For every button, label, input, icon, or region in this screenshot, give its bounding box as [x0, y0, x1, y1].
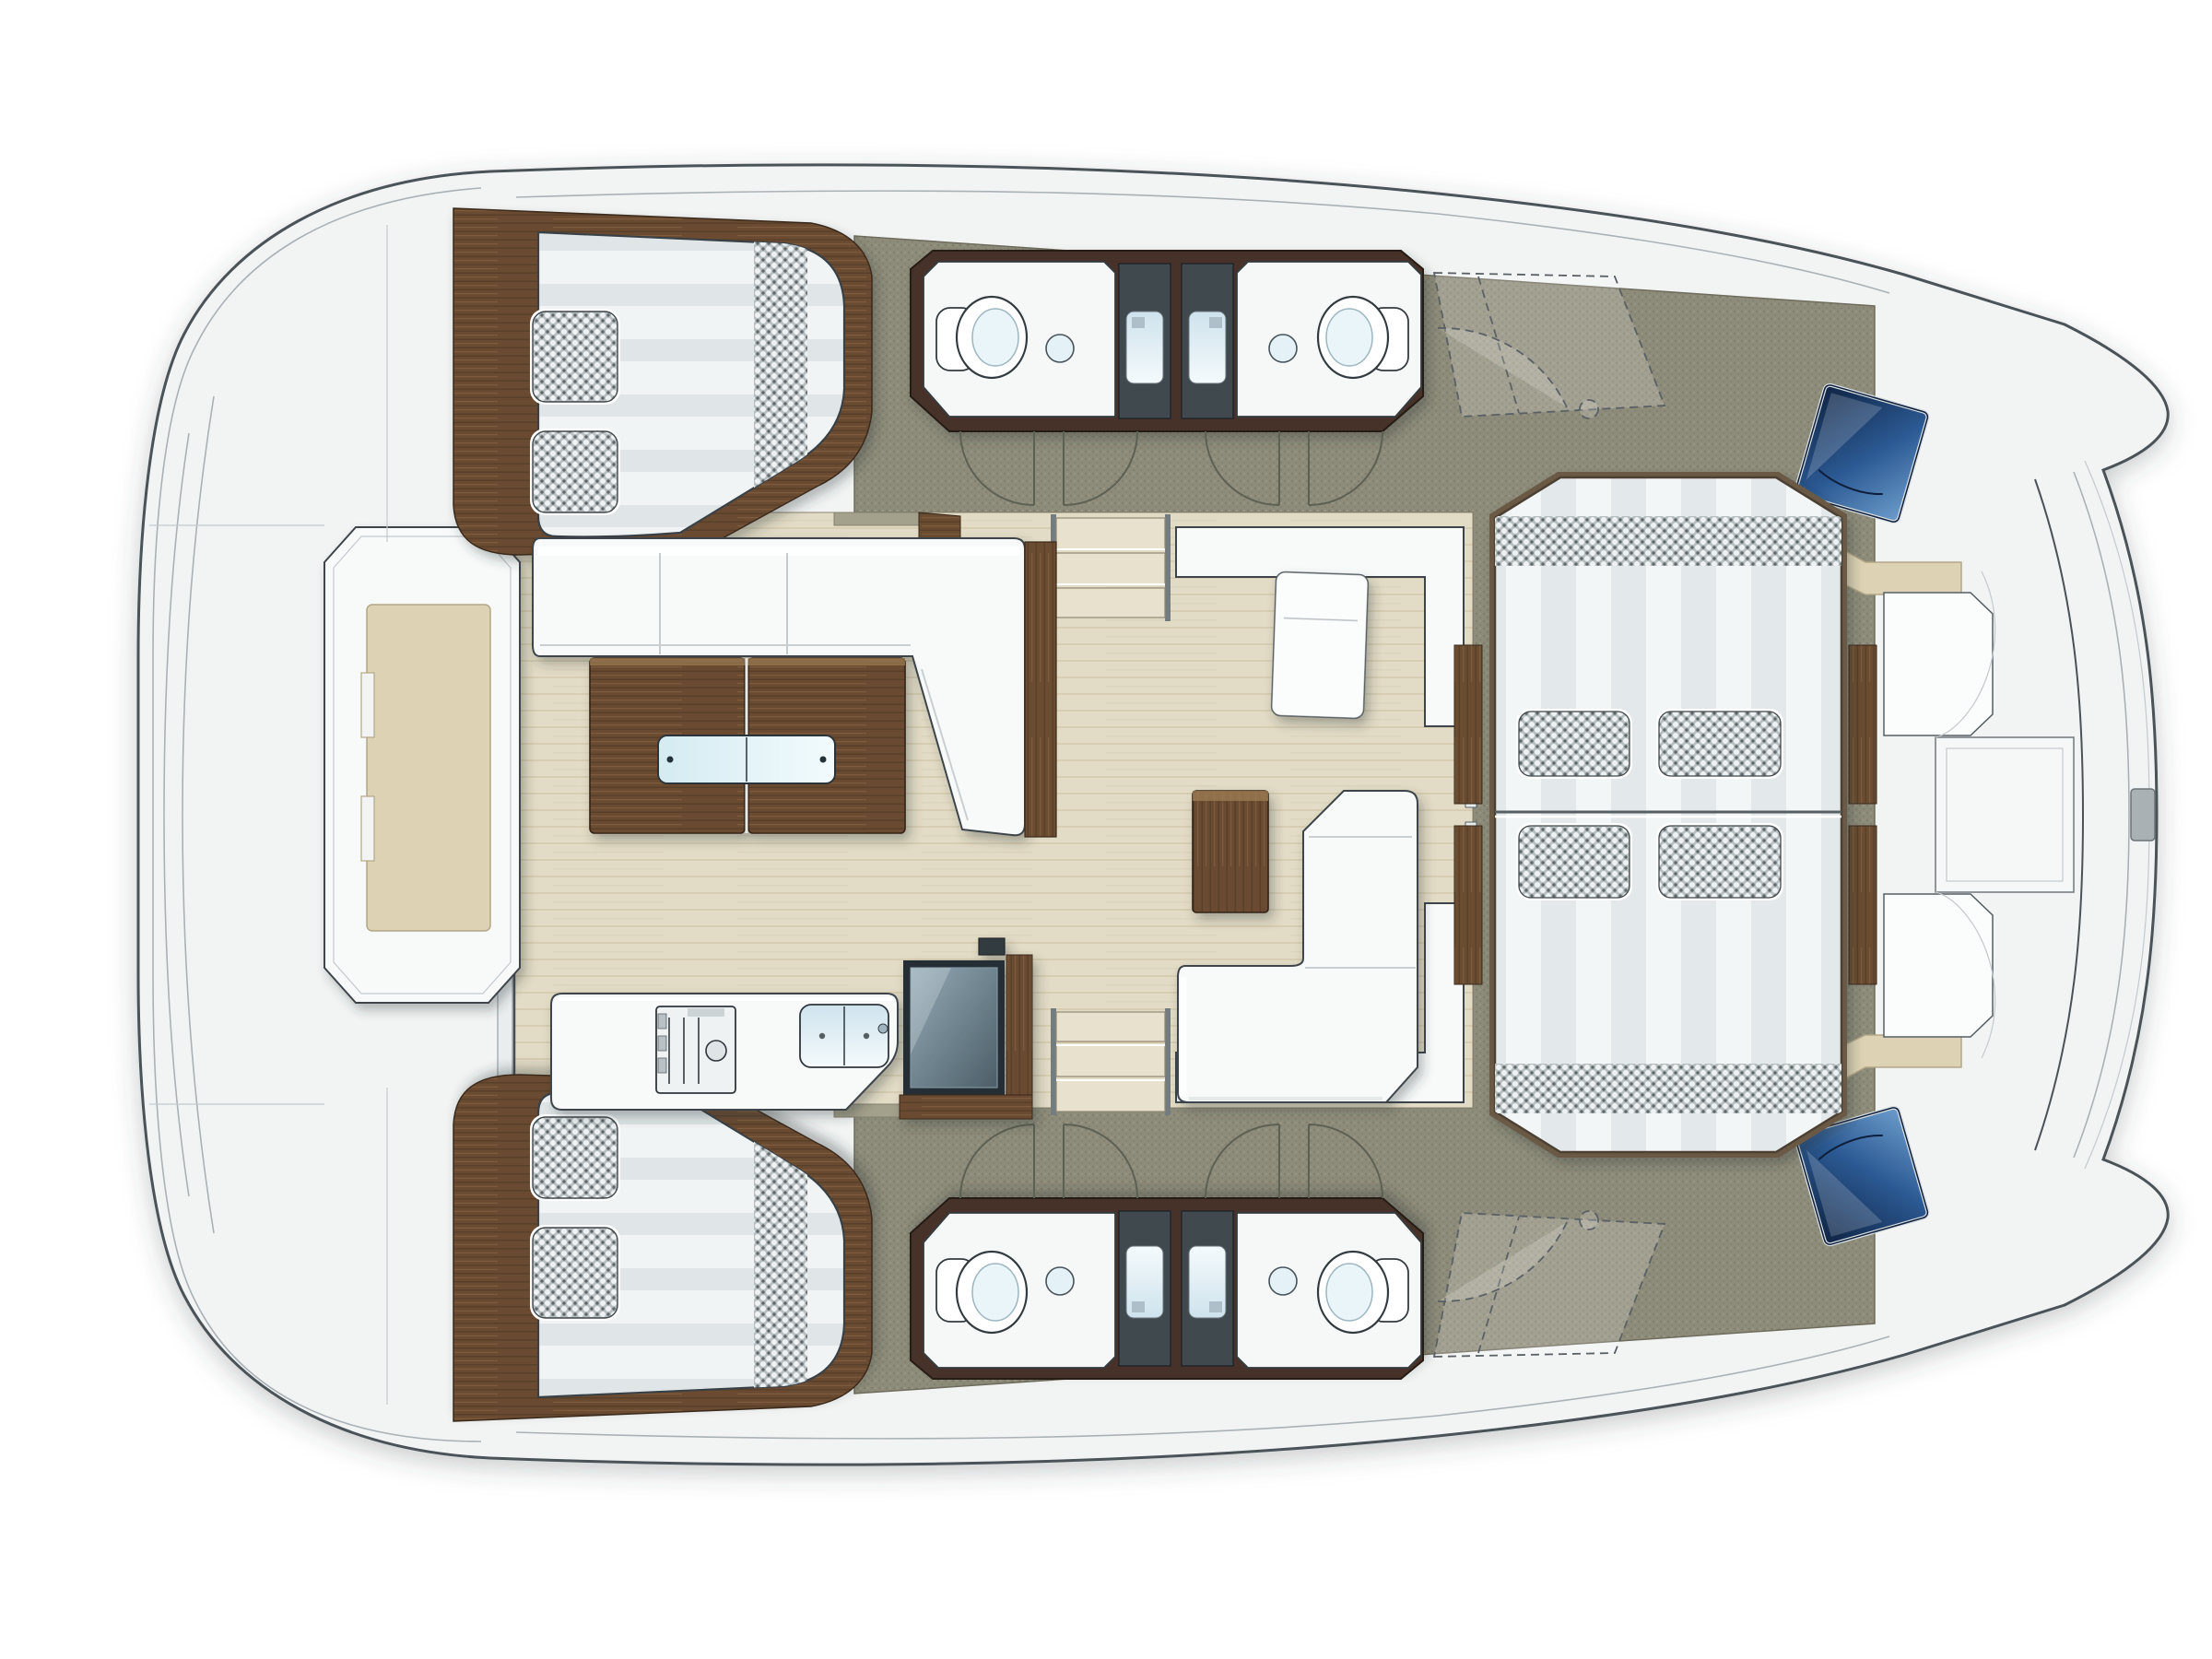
cooktop-icon — [656, 1006, 735, 1093]
shower-right — [1182, 264, 1233, 418]
washbasin-icon — [1269, 335, 1297, 362]
cabin-threshold — [834, 512, 919, 525]
toilet-icon — [936, 297, 1027, 378]
shower-head-icon — [1209, 317, 1222, 328]
shower-left — [1119, 264, 1171, 418]
aft-deck-module — [324, 527, 520, 1003]
toilet-icon — [1318, 297, 1408, 378]
sunpad-checker-band — [1495, 516, 1841, 566]
coffee-table — [1193, 791, 1268, 912]
washbasin-icon — [1046, 335, 1074, 362]
companionway-steps — [1051, 514, 1171, 621]
sunpad-teak-side — [1454, 645, 1482, 804]
heads-block — [911, 251, 1423, 431]
floorplan-canvas — [0, 0, 2212, 1659]
shower-head-icon — [1132, 317, 1145, 328]
bench-seat — [1884, 593, 1993, 735]
bow-roller-fitting — [2131, 789, 2155, 841]
chart-seat — [1271, 571, 1368, 718]
double-sink-icon — [800, 1005, 888, 1067]
forward-sunpad — [1489, 472, 1847, 1158]
berth-pillow — [530, 309, 620, 405]
dining-table — [590, 658, 905, 833]
refrigerator — [900, 938, 1032, 1119]
aft-module-cushion — [367, 605, 490, 931]
sunpad-teak-side — [1849, 645, 1877, 804]
module-notch — [361, 796, 374, 861]
berth-pillow — [530, 429, 620, 515]
sofa-side-trim — [1025, 542, 1056, 837]
catamaran-floorplan — [0, 0, 2212, 1659]
module-notch — [361, 673, 374, 737]
sunpad-checker-band — [1495, 1064, 1841, 1113]
